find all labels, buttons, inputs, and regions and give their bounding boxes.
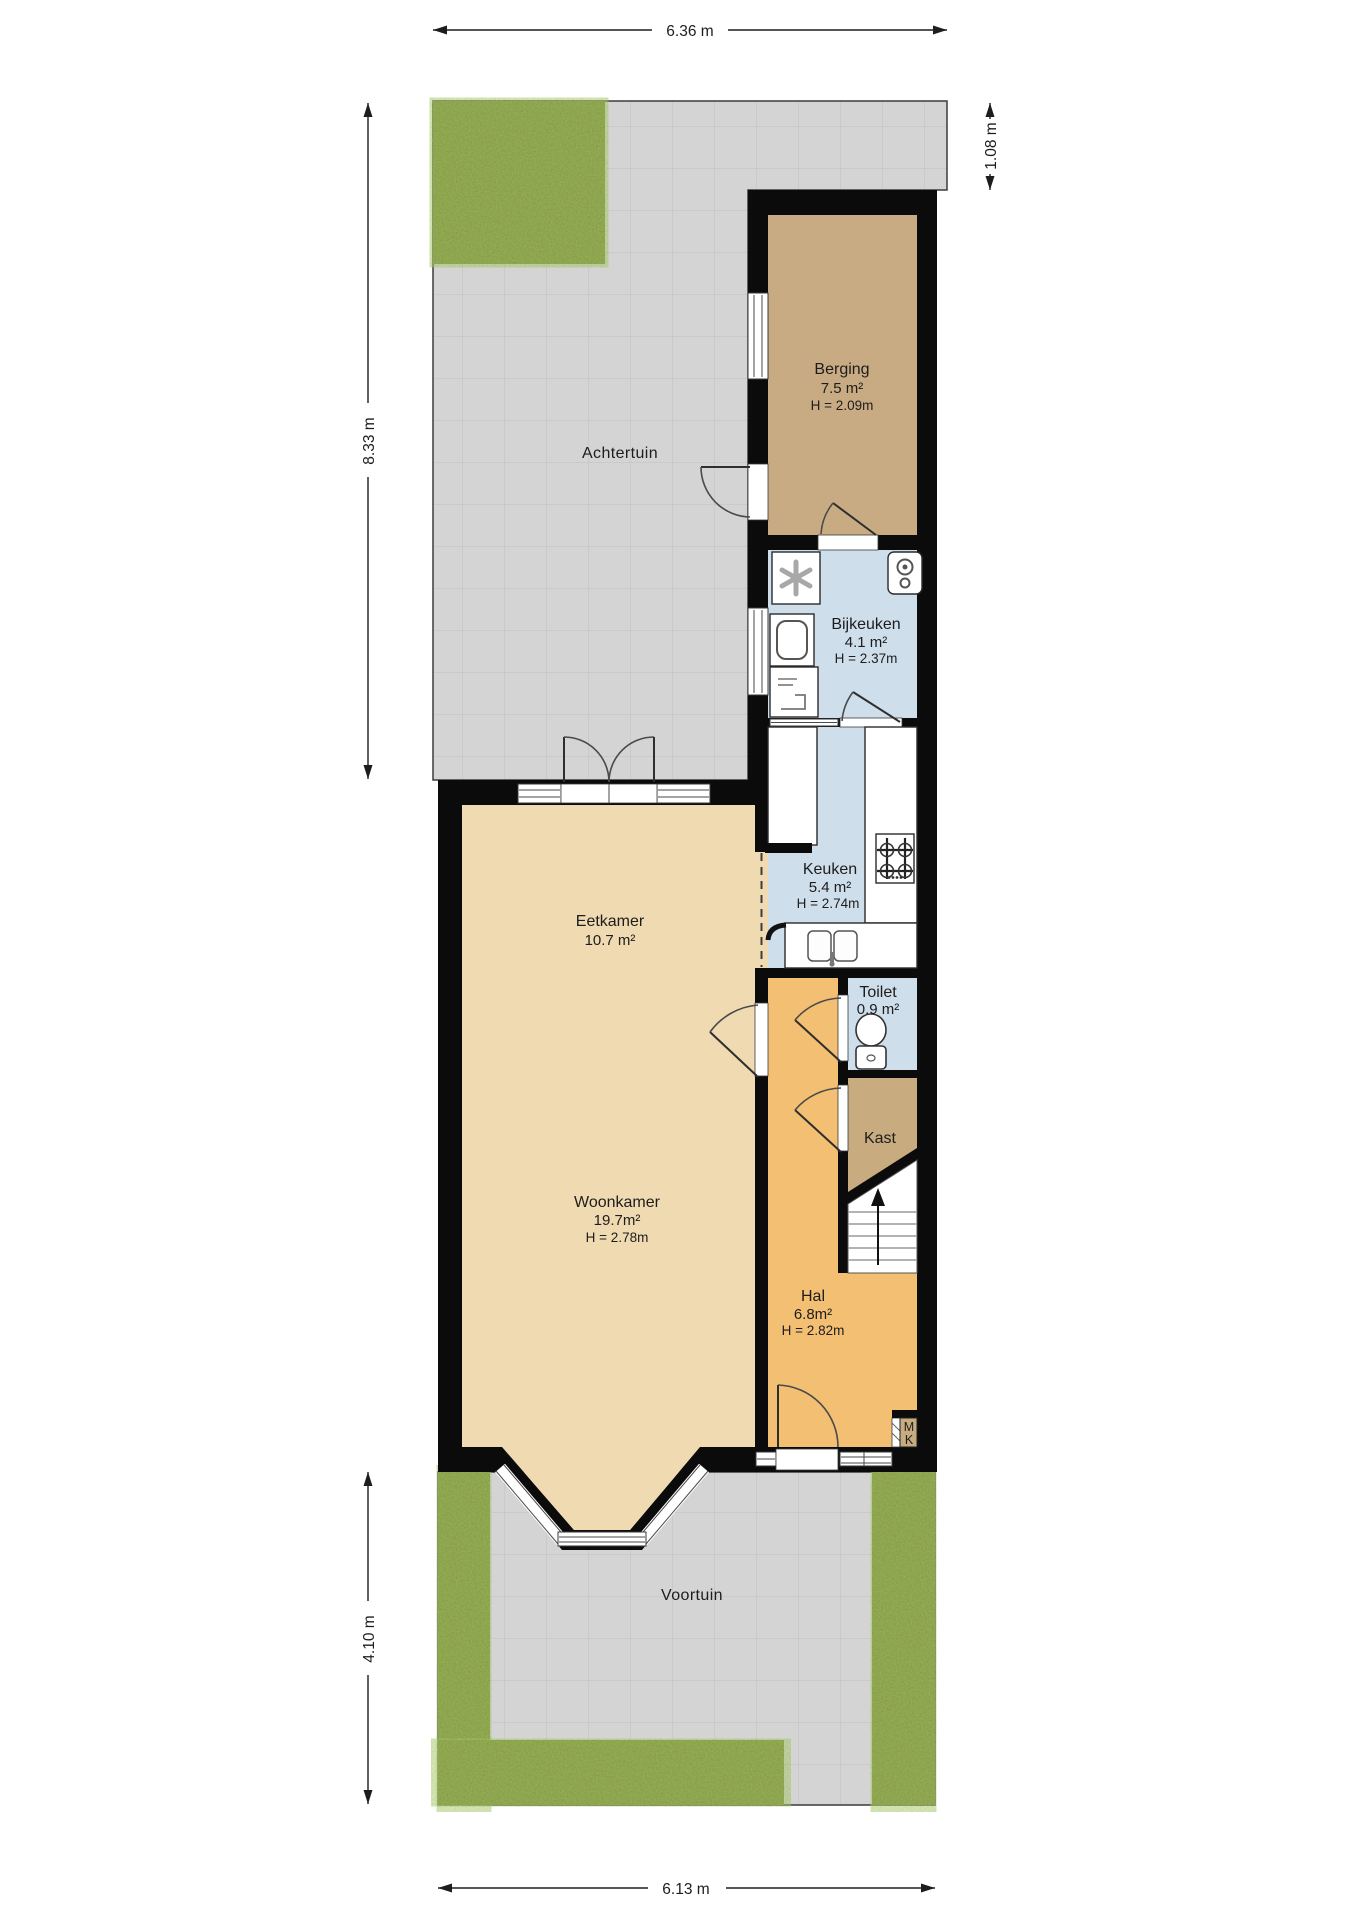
dimension-bottom-label: 6.13 m (662, 1881, 709, 1898)
kitchen-counter (865, 727, 917, 923)
berging-area: 7.5 m² (821, 380, 864, 397)
dryer-icon (770, 614, 814, 666)
bijkeuken-area: 4.1 m² (845, 634, 888, 651)
fridge-unit (768, 727, 817, 845)
eetkamer-label: Eetkamer (576, 913, 645, 930)
meterkast-label-k: K (905, 1433, 914, 1447)
berging-label: Berging (814, 361, 869, 378)
window-bay-front (558, 1532, 646, 1546)
bijkeuken-label: Bijkeuken (831, 616, 900, 633)
window-front-left (756, 1452, 776, 1466)
toilet-icon (856, 1014, 886, 1069)
dimension-extension: 1.08 m (974, 103, 1004, 190)
backyard-grass-texture (433, 101, 605, 264)
voortuin-label: Voortuin (661, 1587, 723, 1604)
keuken-label: Keuken (803, 861, 857, 878)
dimension-front-label: 4.10 m (361, 1615, 378, 1662)
meterkast-label-m: M (904, 1420, 914, 1434)
dimension-top: 6.36 m (433, 17, 947, 42)
kitchen-sink-icon (785, 923, 917, 968)
toilet-area: 0.9 m² (857, 1001, 900, 1018)
window-internal-keuken (770, 719, 838, 726)
woonkamer-label: Woonkamer (574, 1194, 661, 1211)
dimension-extension-label: 1.08 m (983, 122, 1000, 169)
door-meterkast (892, 1418, 900, 1447)
keuken-height: H = 2.74m (797, 896, 860, 911)
window-front-right (840, 1452, 892, 1466)
floorplan-canvas: M K Achtertuin Voortuin Berging 7.5 m² H… (0, 0, 1358, 1920)
dimension-front: 4.10 m (352, 1472, 384, 1804)
woonkamer-height: H = 2.78m (586, 1230, 649, 1245)
dimension-bottom: 6.13 m (438, 1875, 935, 1901)
hal-height: H = 2.82m (782, 1323, 845, 1338)
achtertuin-label: Achtertuin (582, 445, 658, 462)
window-back-left (518, 784, 561, 803)
keuken-area: 5.4 m² (809, 879, 852, 896)
bijkeuken-height: H = 2.37m (835, 651, 898, 666)
hal-label: Hal (801, 1288, 825, 1305)
gas-hob-icon (876, 834, 914, 883)
window-back-right (657, 784, 710, 803)
berging-height: H = 2.09m (811, 398, 874, 413)
keuken-wall-stub (765, 843, 812, 853)
kast-label: Kast (864, 1130, 897, 1147)
toilet-label: Toilet (859, 984, 897, 1001)
boiler-icon (888, 552, 922, 594)
dimension-back-label: 8.33 m (361, 417, 378, 464)
window-bijkeuken (748, 608, 768, 695)
dimension-top-label: 6.36 m (666, 23, 713, 40)
front-yard (438, 1472, 935, 1805)
hal-area: 6.8m² (794, 1306, 832, 1323)
woonkamer-area: 19.7m² (594, 1212, 641, 1229)
washing-machine-icon (772, 552, 820, 604)
dishwasher-icon (770, 667, 818, 717)
window-berging (748, 293, 768, 379)
floorplan-svg: M K Achtertuin Voortuin Berging 7.5 m² H… (0, 0, 1358, 1920)
dimension-back: 8.33 m (352, 103, 384, 779)
eetkamer-area: 10.7 m² (585, 932, 636, 949)
